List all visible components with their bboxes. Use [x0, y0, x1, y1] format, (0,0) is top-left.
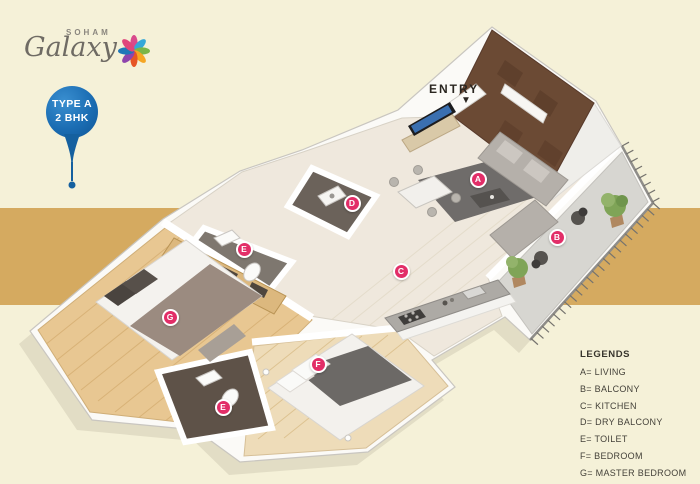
type-badge-line2: 2 BHK: [55, 112, 89, 126]
legend-item-a: A= LIVING: [580, 367, 686, 377]
bedside-lamp: [263, 369, 269, 375]
legend-item-c: C= KITCHEN: [580, 401, 686, 411]
room-marker-g: G: [162, 309, 179, 326]
room-marker-f: F: [310, 356, 327, 373]
legend-title: LEGENDS: [580, 349, 686, 360]
legend-item-f: F= BEDROOM: [580, 451, 686, 461]
brand-flower-icon: [116, 32, 152, 68]
entry-label: ENTRY: [429, 82, 479, 96]
dining-chair: [428, 208, 437, 217]
plant-leaf: [506, 256, 518, 268]
hob-burner: [415, 315, 418, 318]
legend-item-d: D= DRY BALCONY: [580, 417, 686, 427]
dining-chair: [414, 166, 423, 175]
flyer: SOHAM Galaxy TYPE A 2 BHK ENTRY ▼ LEGEND…: [0, 0, 700, 484]
room-marker-b: B: [549, 229, 566, 246]
hob-burner: [404, 314, 407, 317]
room-marker-d: D: [344, 195, 361, 212]
type-badge-pointer: [62, 134, 82, 194]
kettle: [443, 301, 448, 306]
legend-items: A= LIVINGB= BALCONYC= KITCHEND= DRY BALC…: [580, 367, 686, 478]
legend-item-e: E= TOILET: [580, 434, 686, 444]
brand-name-script: Galaxy: [24, 32, 117, 63]
plant-leaf: [601, 193, 615, 207]
type-badge-line1: TYPE A: [52, 98, 92, 112]
brand-logo: SOHAM Galaxy: [24, 24, 154, 80]
bedside-lamp: [345, 435, 351, 441]
dining-chair: [452, 194, 461, 203]
kettle: [450, 298, 454, 302]
entry-arrow-icon: ▼: [461, 95, 471, 106]
washer-door: [330, 194, 335, 199]
balcony-chair-back: [532, 260, 541, 269]
room-marker-e: E: [236, 241, 253, 258]
legend-item-g: G= MASTER BEDROOM: [580, 468, 686, 478]
hob-burner: [411, 311, 414, 314]
balcony-chair-back: [579, 208, 588, 217]
plant-leaf: [616, 195, 628, 207]
hob-burner: [408, 318, 411, 321]
dining-chair: [390, 178, 399, 187]
room-marker-e: E: [215, 399, 232, 416]
table-decor: [490, 195, 494, 199]
legend-panel: LEGENDS A= LIVINGB= BALCONYC= KITCHEND= …: [580, 349, 686, 484]
legend-item-b: B= BALCONY: [580, 384, 686, 394]
type-badge: TYPE A 2 BHK: [46, 86, 98, 138]
room-marker-c: C: [393, 263, 410, 280]
room-marker-a: A: [470, 171, 487, 188]
